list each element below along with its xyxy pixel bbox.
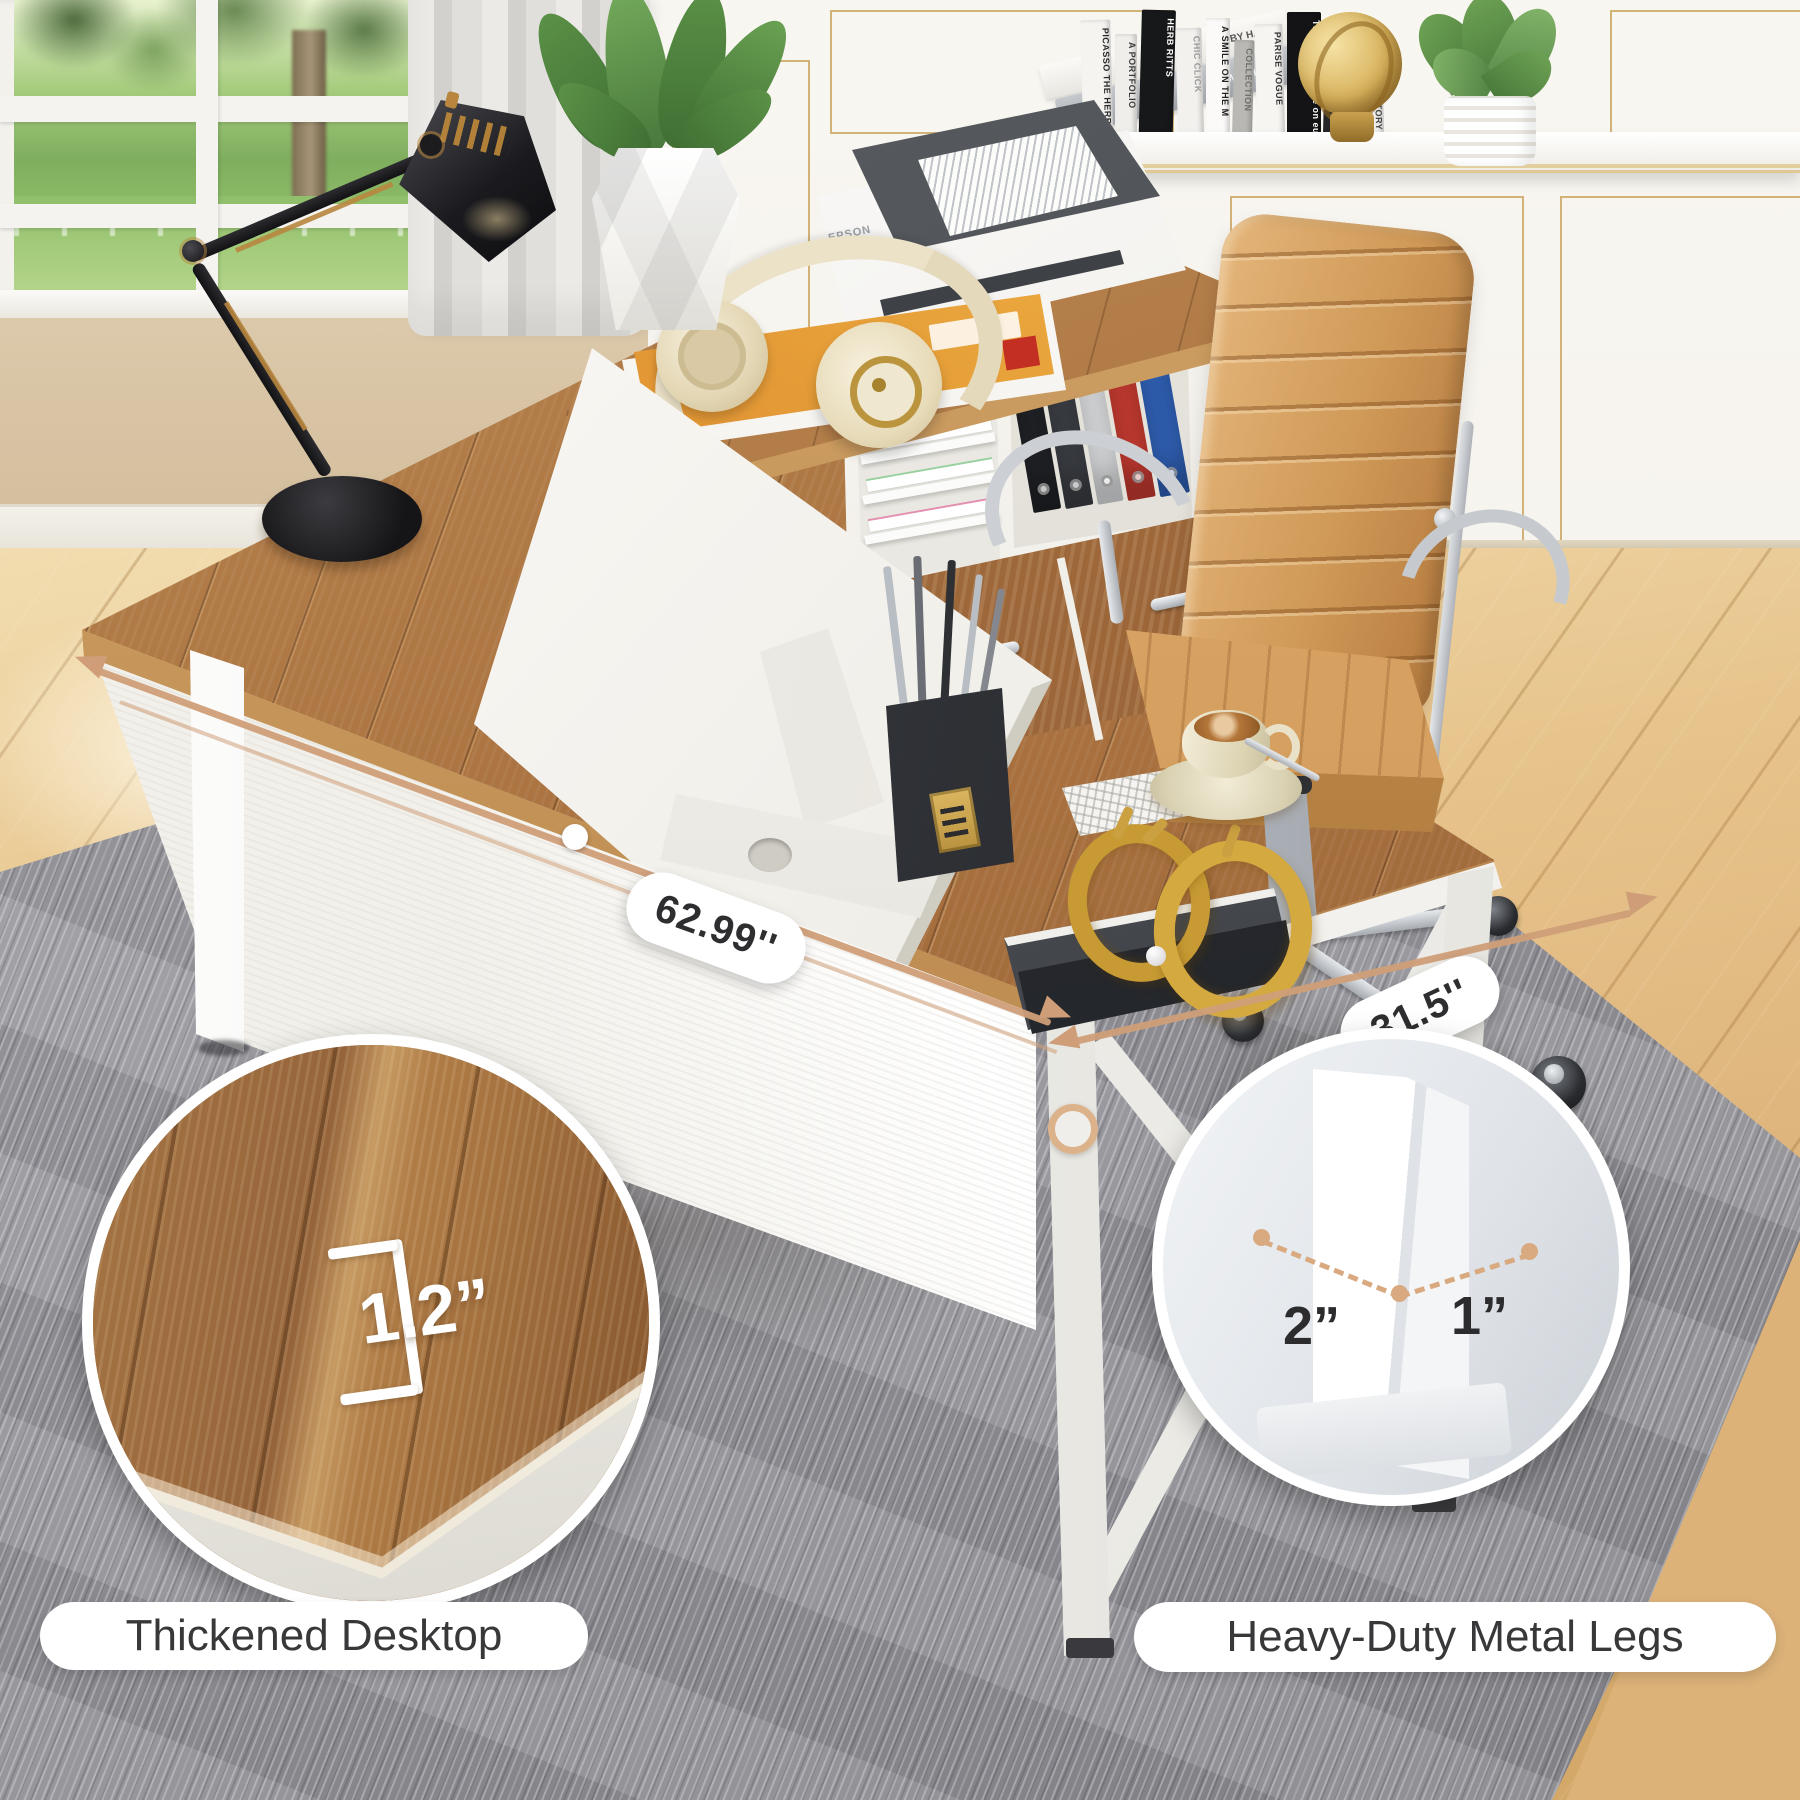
headphones-logo-dot [872, 378, 886, 392]
plant-vase [592, 148, 740, 330]
metal-leg-inset: 2” 1” [1152, 1028, 1630, 1506]
sculpture-pearl [1146, 946, 1166, 966]
desktop-thickness-inset: 1.2” [82, 1034, 660, 1612]
callout-thickened-desktop: Thickened Desktop [40, 1602, 588, 1670]
measure-dot [562, 824, 588, 850]
leg-depth-value: 1” [1451, 1285, 1508, 1347]
coffee-latte [1194, 712, 1260, 742]
leg-width-value: 2” [1283, 1295, 1340, 1357]
measure-dot [1391, 1285, 1408, 1302]
lamp-glow [462, 196, 532, 242]
lamp-elbow-joint [182, 240, 204, 262]
window-mullion [0, 96, 436, 122]
shelf-gold-edge [1028, 164, 1800, 168]
leg-anchor-ring [1048, 1104, 1098, 1154]
headphones-ring [850, 356, 922, 428]
window-mullion [0, 204, 436, 228]
leg-foot-closeup [1256, 1382, 1512, 1480]
callout-heavy-duty-legs: Heavy-Duty Metal Legs [1134, 1602, 1776, 1672]
product-photo-l-shaped-desk: BY HAND DREW SIMONS PICASSO THE HERBA PO… [0, 0, 1800, 1800]
measure-dot [1521, 1243, 1538, 1260]
desk-lamp-base [262, 476, 422, 562]
magazine-red-block [1002, 336, 1040, 371]
caster-cap [1544, 1064, 1564, 1084]
monitor-cable-hole [748, 838, 792, 872]
measure-dot [1253, 1229, 1270, 1246]
globe-stand [1330, 112, 1374, 142]
cabinet-trim [1610, 10, 1800, 134]
plant-pot [1444, 96, 1536, 166]
window [0, 0, 436, 318]
leg-foot-pad [1066, 1638, 1114, 1658]
lamp-hinge [420, 134, 442, 156]
headphones-cushion [678, 322, 746, 390]
cabinet-trim [1560, 196, 1800, 544]
tree-trunk [292, 30, 326, 220]
